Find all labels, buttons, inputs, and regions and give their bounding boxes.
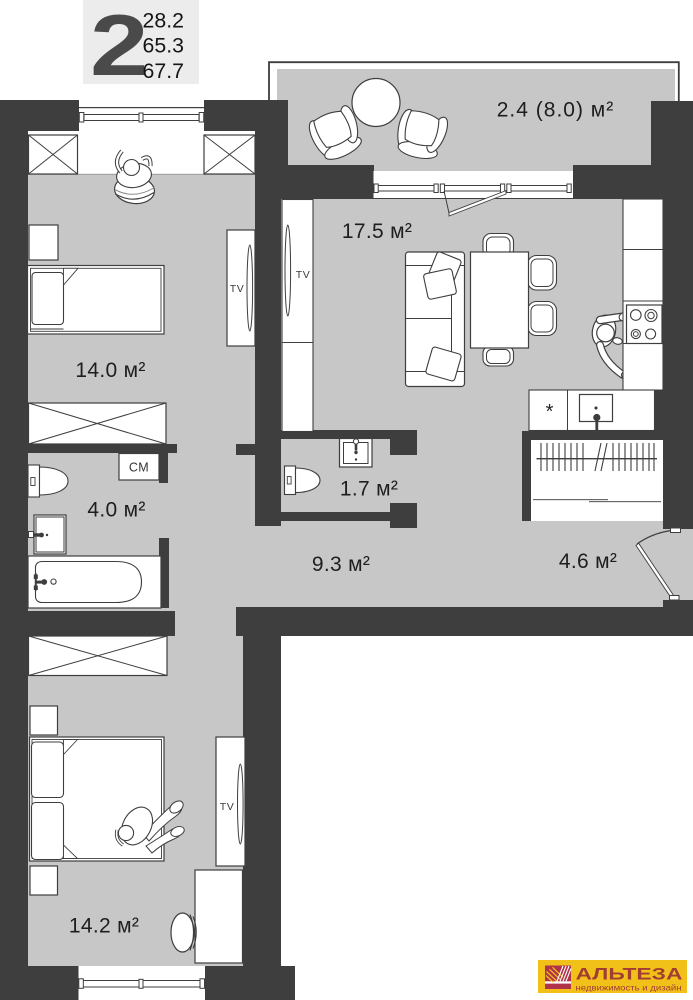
svg-text:17.5 м²: 17.5 м² xyxy=(342,220,412,243)
svg-text:14.0 м²: 14.0 м² xyxy=(75,359,145,382)
svg-text:1.7 м²: 1.7 м² xyxy=(340,478,398,501)
svg-text:4.6 м²: 4.6 м² xyxy=(559,550,617,573)
svg-text:2.4 (8.0) м²: 2.4 (8.0) м² xyxy=(497,99,614,122)
svg-text:14.2 м²: 14.2 м² xyxy=(69,915,139,938)
svg-text:АЛЬТЕЗА: АЛЬТЕЗА xyxy=(576,966,683,984)
svg-text:СМ: СМ xyxy=(129,461,149,475)
svg-text:*: * xyxy=(546,401,554,423)
svg-text:28.2: 28.2 xyxy=(143,8,184,32)
svg-text:4.0 м²: 4.0 м² xyxy=(87,499,145,522)
svg-text:2: 2 xyxy=(90,0,148,94)
svg-text:недвижимость и дизайн: недвижимость и дизайн xyxy=(576,984,682,993)
svg-text:9.3 м²: 9.3 м² xyxy=(312,553,370,576)
svg-text:65.3: 65.3 xyxy=(143,34,184,58)
svg-text:TV: TV xyxy=(296,269,311,281)
svg-text:TV: TV xyxy=(230,283,245,295)
svg-text:TV: TV xyxy=(220,801,235,813)
svg-text:67.7: 67.7 xyxy=(143,59,184,83)
